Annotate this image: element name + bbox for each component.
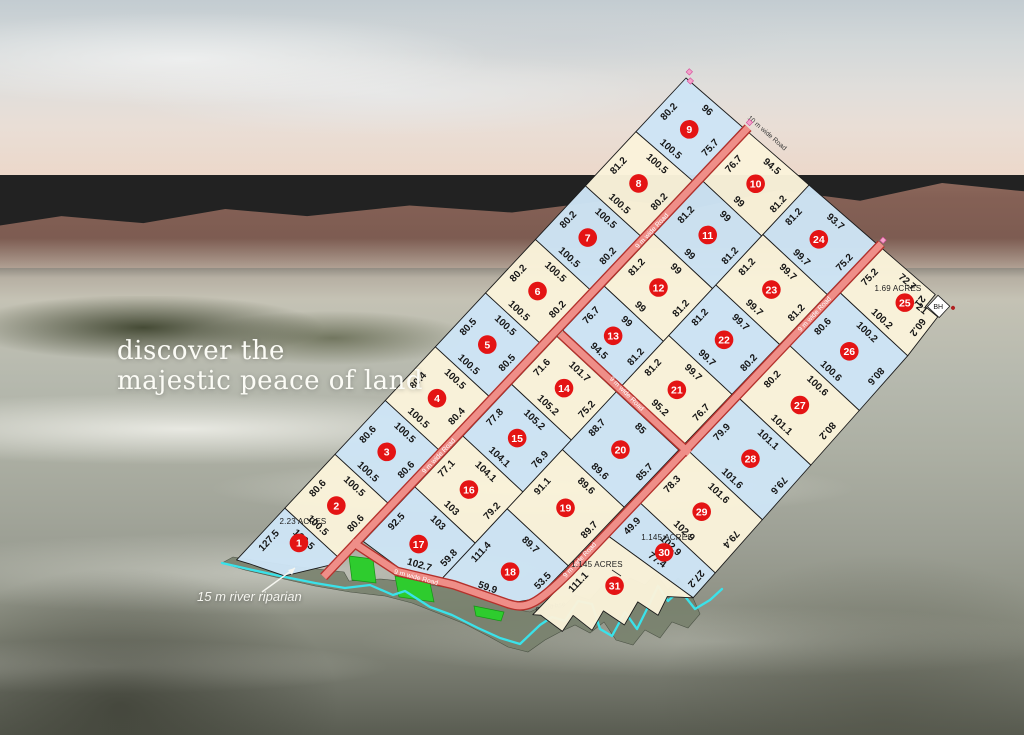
plat-grid: 100.5127.51100.580.6100.580.62100.580.61…	[234, 61, 962, 735]
tagline: discover the majestic peace of land	[117, 336, 423, 396]
acres-label-31: 1.145 ACRES	[571, 560, 623, 569]
plot-number-21: 21	[671, 385, 683, 397]
acres-label-1: 2.23 ACRES	[280, 517, 327, 526]
plot-number-22: 22	[718, 335, 730, 347]
plot-number-10: 10	[750, 179, 762, 191]
plot-number-17: 17	[413, 539, 425, 551]
plot-number-5: 5	[484, 339, 490, 351]
plot-number-15: 15	[511, 433, 523, 445]
plot-number-26: 26	[843, 346, 855, 358]
acres-label-30: 1.145 ACRES	[641, 533, 693, 542]
flyer-canvas: Guard hse100.5127.51100.580.6100.580.621…	[0, 0, 1024, 735]
plot-number-3: 3	[384, 447, 390, 459]
plot-number-24: 24	[813, 234, 825, 246]
plot-number-7: 7	[585, 232, 591, 244]
tagline-line2: majestic peace of land	[117, 366, 423, 396]
plot-number-27: 27	[794, 400, 806, 412]
plot-number-2: 2	[333, 500, 339, 512]
tagline-line1: discover the	[117, 336, 285, 366]
plot-number-1: 1	[296, 538, 302, 550]
plot-number-31: 31	[609, 580, 621, 592]
plot-number-29: 29	[696, 506, 708, 518]
plot-number-9: 9	[686, 124, 692, 136]
plot-number-6: 6	[535, 286, 541, 298]
riparian-label: 15 m river riparian	[197, 589, 302, 604]
plot-number-4: 4	[434, 393, 440, 405]
plot-number-11: 11	[702, 230, 713, 242]
plot-number-28: 28	[745, 454, 757, 466]
acres-label-25: 1.69 ACRES	[875, 284, 922, 293]
survey-marker	[880, 237, 886, 243]
corner-marker	[950, 305, 956, 311]
survey-marker	[686, 69, 692, 75]
plot-number-25: 25	[899, 297, 911, 309]
plot-number-23: 23	[766, 284, 778, 296]
plot-number-19: 19	[560, 503, 572, 515]
plot-number-30: 30	[658, 547, 670, 559]
plot-number-14: 14	[558, 383, 570, 395]
plot-number-12: 12	[653, 282, 665, 294]
plot-number-13: 13	[607, 331, 619, 343]
plot-number-18: 18	[504, 566, 516, 578]
borehole-label: BH	[933, 304, 943, 311]
plot-number-16: 16	[463, 484, 475, 496]
plot-number-8: 8	[636, 178, 642, 190]
plot-number-20: 20	[615, 444, 627, 456]
